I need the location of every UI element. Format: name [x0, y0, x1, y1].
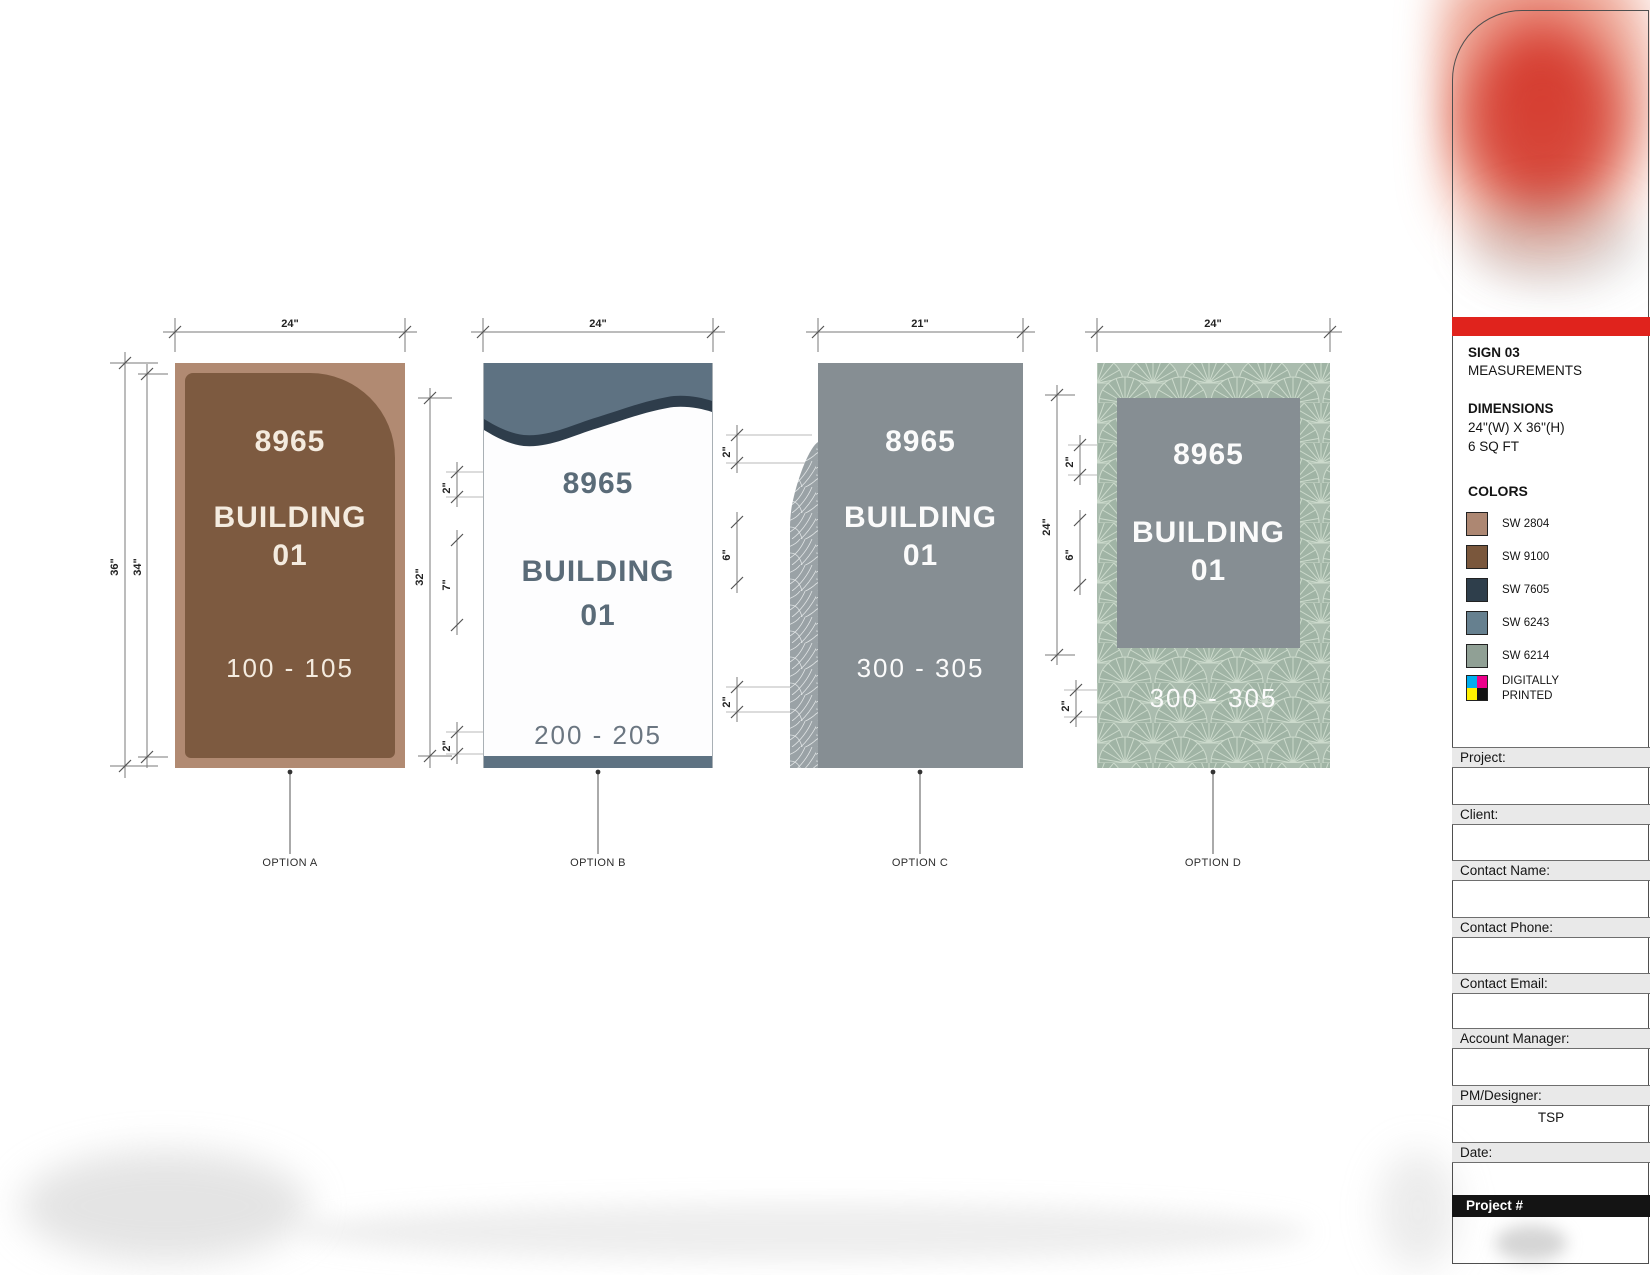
svg-text:24": 24"	[589, 318, 606, 330]
sign-option-d: 8965 BUILDING 01 300 - 305	[1097, 363, 1330, 768]
svg-text:2": 2"	[1060, 700, 1072, 711]
field-pm-designer: PM/Designer:	[1452, 1085, 1650, 1106]
sign-b-bottom-bar	[484, 756, 712, 768]
swatch-code: SW 2804	[1502, 512, 1549, 536]
sign-c-building: BUILDING	[818, 499, 1023, 537]
sign-c-address: 8965	[818, 423, 1023, 461]
color-swatch	[1466, 611, 1488, 635]
color-swatch	[1466, 512, 1488, 536]
colors-heading: COLORS	[1468, 482, 1528, 500]
dimensions-area: 6 SQ FT	[1468, 438, 1519, 456]
sign-a-address: 8965	[175, 423, 405, 461]
svg-text:2": 2"	[721, 696, 733, 707]
watermark-blob	[1378, 1150, 1458, 1270]
svg-text:6": 6"	[721, 549, 733, 560]
option-b-label: OPTION B	[528, 857, 668, 869]
sign-d-range: 300 - 305	[1097, 681, 1330, 715]
dim-height-a: 36" 34"	[109, 352, 168, 778]
dim-width-b: 24"	[471, 318, 725, 352]
dimensions-heading: DIMENSIONS	[1468, 400, 1554, 418]
color-swatch	[1466, 545, 1488, 569]
sign-title: SIGN 03	[1468, 344, 1520, 362]
project-number-header: Project #	[1452, 1195, 1650, 1217]
field-contact-phone: Contact Phone:	[1452, 917, 1650, 938]
svg-text:2": 2"	[1064, 456, 1076, 467]
sign-a-number: 01	[175, 537, 405, 575]
swatch-code: SW 6214	[1502, 644, 1549, 668]
watermark-streak	[300, 1203, 1310, 1261]
svg-text:24": 24"	[1041, 518, 1053, 535]
svg-text:24": 24"	[1204, 318, 1221, 330]
svg-text:2": 2"	[441, 482, 453, 493]
svg-text:21": 21"	[911, 318, 928, 330]
cmyk-cyan	[1467, 676, 1477, 688]
dimensions-value: 24"(W) X 36"(H)	[1468, 419, 1565, 437]
sign-b-number: 01	[484, 597, 712, 635]
cmyk-print-icon	[1466, 675, 1488, 701]
sign-c-number: 01	[818, 537, 1023, 575]
dim-width-c: 21"	[806, 318, 1035, 352]
cmyk-magenta	[1477, 676, 1487, 688]
color-swatch	[1466, 644, 1488, 668]
option-c-label: OPTION C	[850, 857, 990, 869]
option-a-label: OPTION A	[220, 857, 360, 869]
sign-option-b: 8965 BUILDING 01 200 - 205	[483, 363, 713, 768]
sign-c-pattern-strip	[790, 435, 818, 768]
field-account-manager: Account Manager:	[1452, 1028, 1650, 1049]
field-contact-email: Contact Email:	[1452, 973, 1650, 994]
svg-text:7": 7"	[441, 579, 453, 590]
field-date: Date:	[1452, 1142, 1650, 1163]
field-contact-name: Contact Name:	[1452, 860, 1650, 881]
color-swatch	[1466, 578, 1488, 602]
sign-subtitle: MEASUREMENTS	[1468, 362, 1582, 380]
print-note-line1: DIGITALLY	[1502, 674, 1559, 689]
accent-stripe	[1452, 317, 1650, 336]
svg-text:34": 34"	[132, 558, 144, 575]
svg-text:2": 2"	[441, 740, 453, 751]
sign-b-building: BUILDING	[484, 553, 712, 591]
sign-option-a: 8965 BUILDING 01 100 - 105	[175, 363, 405, 768]
dim-width-a: 24"	[163, 318, 417, 352]
svg-text:6": 6"	[1064, 549, 1076, 560]
sign-b-wave-header	[484, 363, 712, 463]
svg-text:24": 24"	[281, 318, 298, 330]
print-note-line2: PRINTED	[1502, 689, 1552, 704]
option-d-label: OPTION D	[1143, 857, 1283, 869]
pm-designer-value: TSP	[1452, 1110, 1650, 1125]
title-block-panel	[1452, 10, 1649, 1264]
field-client: Client:	[1452, 804, 1650, 825]
sign-c-range: 300 - 305	[818, 651, 1023, 685]
svg-text:2": 2"	[721, 446, 733, 457]
sign-a-building: BUILDING	[175, 499, 405, 537]
cmyk-black	[1477, 688, 1487, 700]
spec-sheet: 24" 24" 21" 24" 36" 34"	[0, 0, 1650, 1275]
swatch-code: SW 6243	[1502, 611, 1549, 635]
sign-b-address: 8965	[484, 465, 712, 503]
swatch-code: SW 9100	[1502, 545, 1549, 569]
sign-b-range: 200 - 205	[484, 719, 712, 751]
cmyk-yellow	[1467, 688, 1477, 700]
watermark-blob	[20, 1150, 310, 1262]
sign-d-building: BUILDING	[1117, 514, 1300, 552]
sign-option-c: 8965 BUILDING 01 300 - 305	[818, 363, 1023, 768]
svg-text:36": 36"	[109, 558, 121, 575]
svg-text:32": 32"	[414, 568, 426, 585]
swatch-code: SW 7605	[1502, 578, 1549, 602]
field-project: Project:	[1452, 747, 1650, 768]
option-leader-lines	[288, 770, 1216, 854]
sign-a-range: 100 - 105	[175, 651, 405, 685]
sign-d-number: 01	[1117, 552, 1300, 590]
sign-d-address: 8965	[1117, 436, 1300, 474]
dim-width-d: 24"	[1085, 318, 1342, 352]
